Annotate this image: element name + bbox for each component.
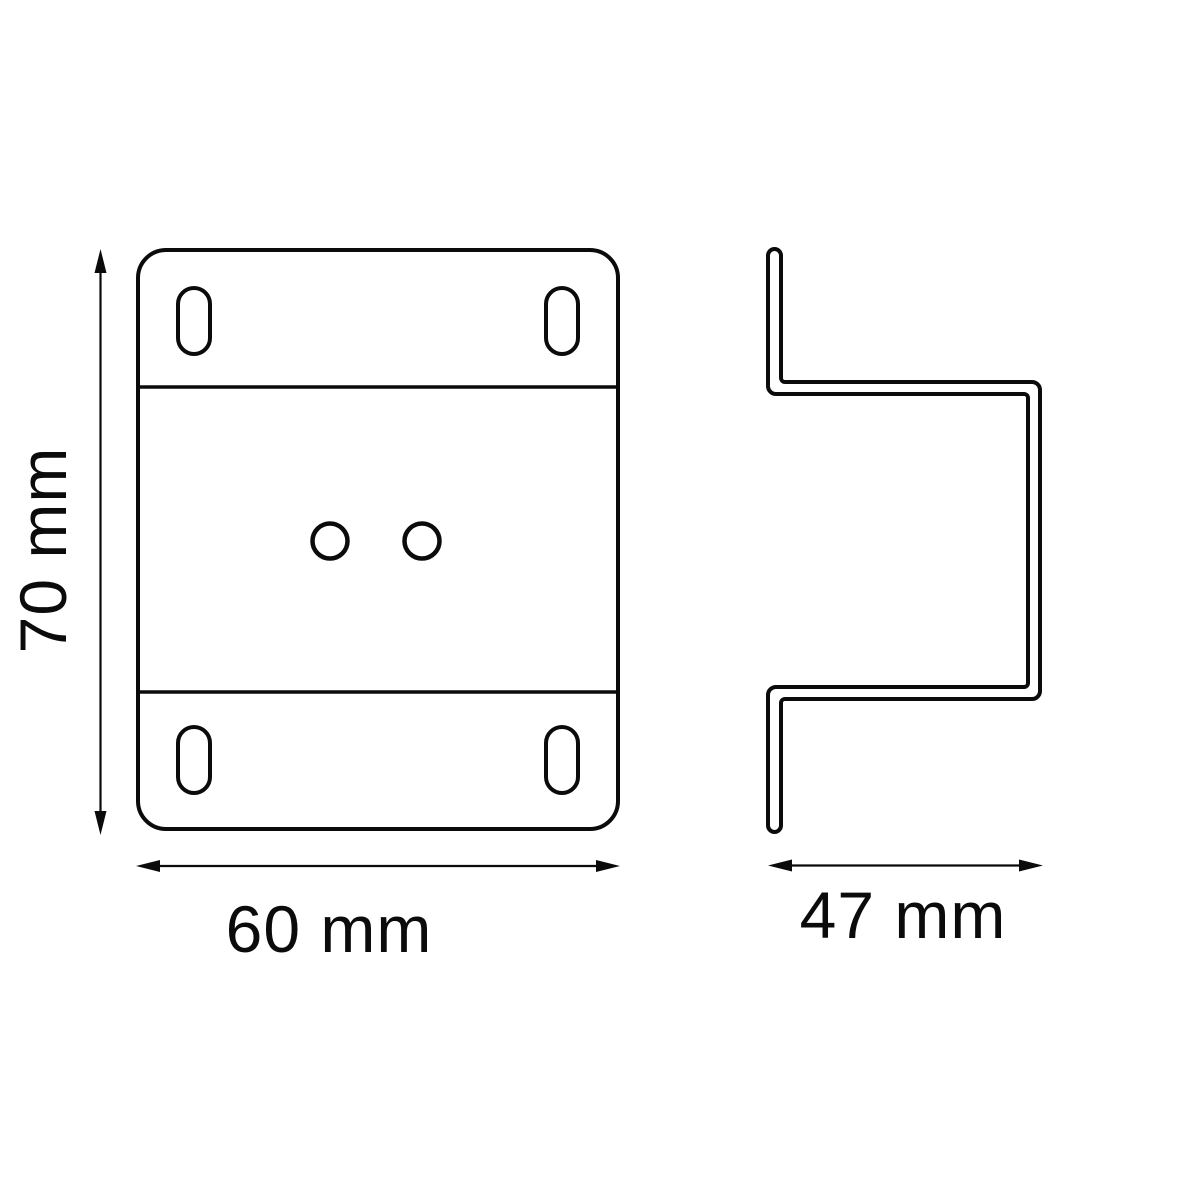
technical-drawing: 70 mm 60 mm 47 mm xyxy=(0,0,1200,1200)
center-hole-right xyxy=(405,524,440,559)
arrowhead-right-icon xyxy=(1019,860,1043,872)
profile-outline xyxy=(768,249,1040,832)
mounting-slot-top-left xyxy=(178,288,210,354)
width-dimension-label: 60 mm xyxy=(226,892,433,966)
height-dimension-label: 70 mm xyxy=(6,447,80,654)
front-view xyxy=(137,250,619,829)
arrowhead-right-icon xyxy=(596,860,620,872)
drawing-canvas: 70 mm 60 mm 47 mm xyxy=(0,0,1200,1200)
mounting-slot-top-right xyxy=(546,288,578,354)
mounting-slot-bottom-right xyxy=(546,727,578,793)
depth-dimension: 47 mm xyxy=(768,860,1043,953)
arrowhead-left-icon xyxy=(136,860,160,872)
width-dimension: 60 mm xyxy=(136,860,620,966)
arrowhead-left-icon xyxy=(768,860,792,872)
center-hole-left xyxy=(313,524,348,559)
height-dimension: 70 mm xyxy=(6,249,107,835)
mounting-slot-bottom-left xyxy=(178,727,210,793)
depth-dimension-label: 47 mm xyxy=(800,878,1007,952)
arrowhead-up-icon xyxy=(95,249,107,273)
arrowhead-down-icon xyxy=(95,811,107,835)
side-view xyxy=(768,249,1040,832)
